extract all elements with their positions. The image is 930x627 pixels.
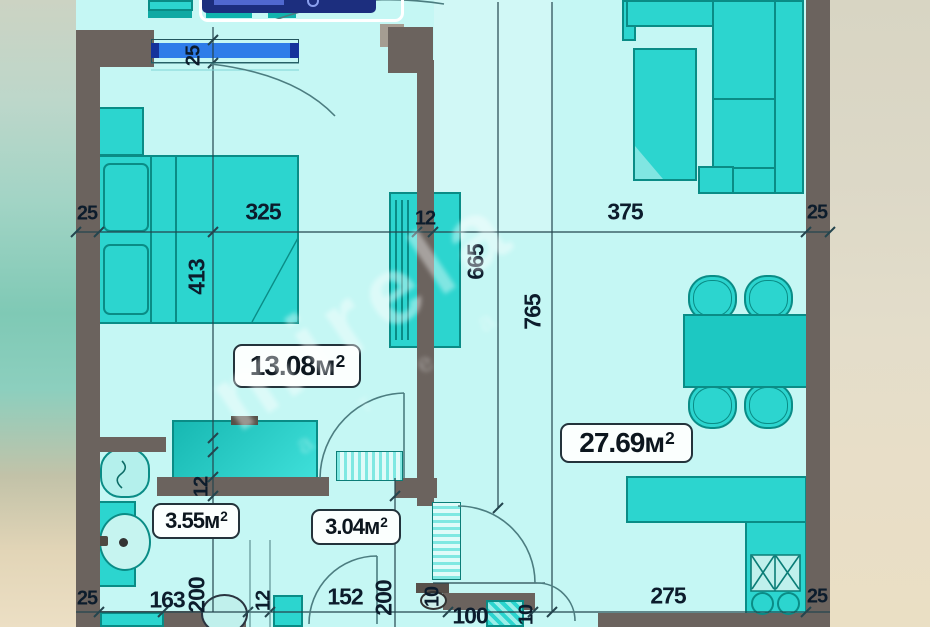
dim-label: 25	[183, 46, 206, 66]
wardrobe-rail	[395, 200, 397, 340]
wall-bedroom-bottom	[157, 477, 329, 496]
area-value: 3.55м	[165, 508, 219, 534]
dining-chair	[688, 382, 737, 429]
area-sup: 2	[665, 428, 674, 449]
wardrobe-rail	[401, 200, 403, 340]
dim-label: 152	[327, 584, 362, 611]
wardrobe-rail	[407, 200, 409, 340]
dresser-handle	[231, 416, 258, 425]
dim-label: 12	[191, 477, 214, 497]
stove-burner	[777, 592, 800, 615]
pillow	[103, 163, 149, 232]
floor-plan-screenshot: 25 325 12 375 25 25 413 12 200 665 765 2…	[0, 0, 930, 627]
bathroom-cabinet	[100, 612, 164, 627]
sink-drain	[119, 538, 128, 547]
wall-center-vertical	[417, 60, 434, 506]
pillow	[103, 244, 149, 315]
logo-badge-stripe	[214, 0, 284, 5]
dining-chair	[744, 382, 793, 429]
area-value: 27.69м	[579, 427, 664, 459]
dim-label: 25	[77, 588, 97, 611]
radiator	[432, 502, 461, 580]
dim-label: 665	[463, 244, 490, 279]
dim-label: 25	[77, 203, 97, 226]
washing-machine	[100, 448, 150, 498]
wall-left	[76, 30, 100, 627]
dim-label: 413	[184, 259, 211, 294]
logo-badge	[202, 0, 376, 13]
dim-label: 12	[415, 208, 435, 231]
kitchen-counter-top	[626, 476, 807, 523]
dim-label: 275	[650, 583, 685, 610]
balcony-planter-base	[148, 11, 192, 18]
window-cap	[151, 43, 159, 58]
area-sup: 2	[380, 515, 387, 530]
sofa-ottoman	[698, 166, 734, 194]
dim-label: 25	[807, 586, 827, 609]
dim-label: 200	[371, 580, 398, 615]
dim-label: 325	[245, 199, 280, 226]
dim-label: 765	[520, 294, 547, 329]
area-sup: 2	[336, 351, 345, 372]
area-label-bathroom: 3.55м2	[152, 503, 240, 539]
wall-right	[806, 0, 830, 627]
stove-burner	[751, 592, 774, 615]
area-label-living: 27.69м2	[560, 423, 693, 463]
window-cap	[290, 43, 299, 58]
dim-label: 10	[516, 605, 539, 625]
hallway-cabinet	[273, 595, 303, 627]
sofa-side-section	[712, 0, 804, 194]
wall-bathroom-top	[92, 437, 166, 452]
dim-label: 375	[607, 199, 642, 226]
beach-background-left	[0, 0, 76, 627]
area-value: 13.08м	[250, 350, 335, 382]
dim-label: 200	[184, 577, 211, 612]
bed-line	[175, 156, 177, 323]
dim-label: 10	[422, 587, 445, 607]
wall-bedroom-bottom-right	[395, 478, 437, 498]
wall-bottom-right	[598, 613, 830, 627]
nightstand	[97, 107, 144, 156]
area-label-hallway: 3.04м2	[311, 509, 401, 545]
dim-label: 25	[807, 202, 827, 225]
bed-headboard-line	[150, 156, 152, 323]
sofa-back-line	[774, 2, 776, 192]
area-value: 3.04м	[325, 514, 379, 540]
dining-table	[683, 314, 808, 388]
dim-label: 12	[253, 591, 276, 611]
sofa-cushion-line	[712, 98, 776, 100]
balcony-planter	[148, 0, 193, 11]
area-label-bedroom: 13.08м2	[233, 344, 361, 388]
radiator	[336, 451, 403, 481]
dresser	[172, 420, 318, 481]
beach-background-right	[830, 0, 930, 627]
dim-label: 100	[452, 603, 487, 627]
logo-badge-ring-icon	[307, 0, 319, 7]
area-sup: 2	[220, 509, 227, 524]
wall-top-stub	[76, 30, 154, 67]
sofa-top-section	[626, 0, 715, 27]
dim-label: 163	[149, 587, 184, 614]
window-glass	[151, 43, 299, 58]
